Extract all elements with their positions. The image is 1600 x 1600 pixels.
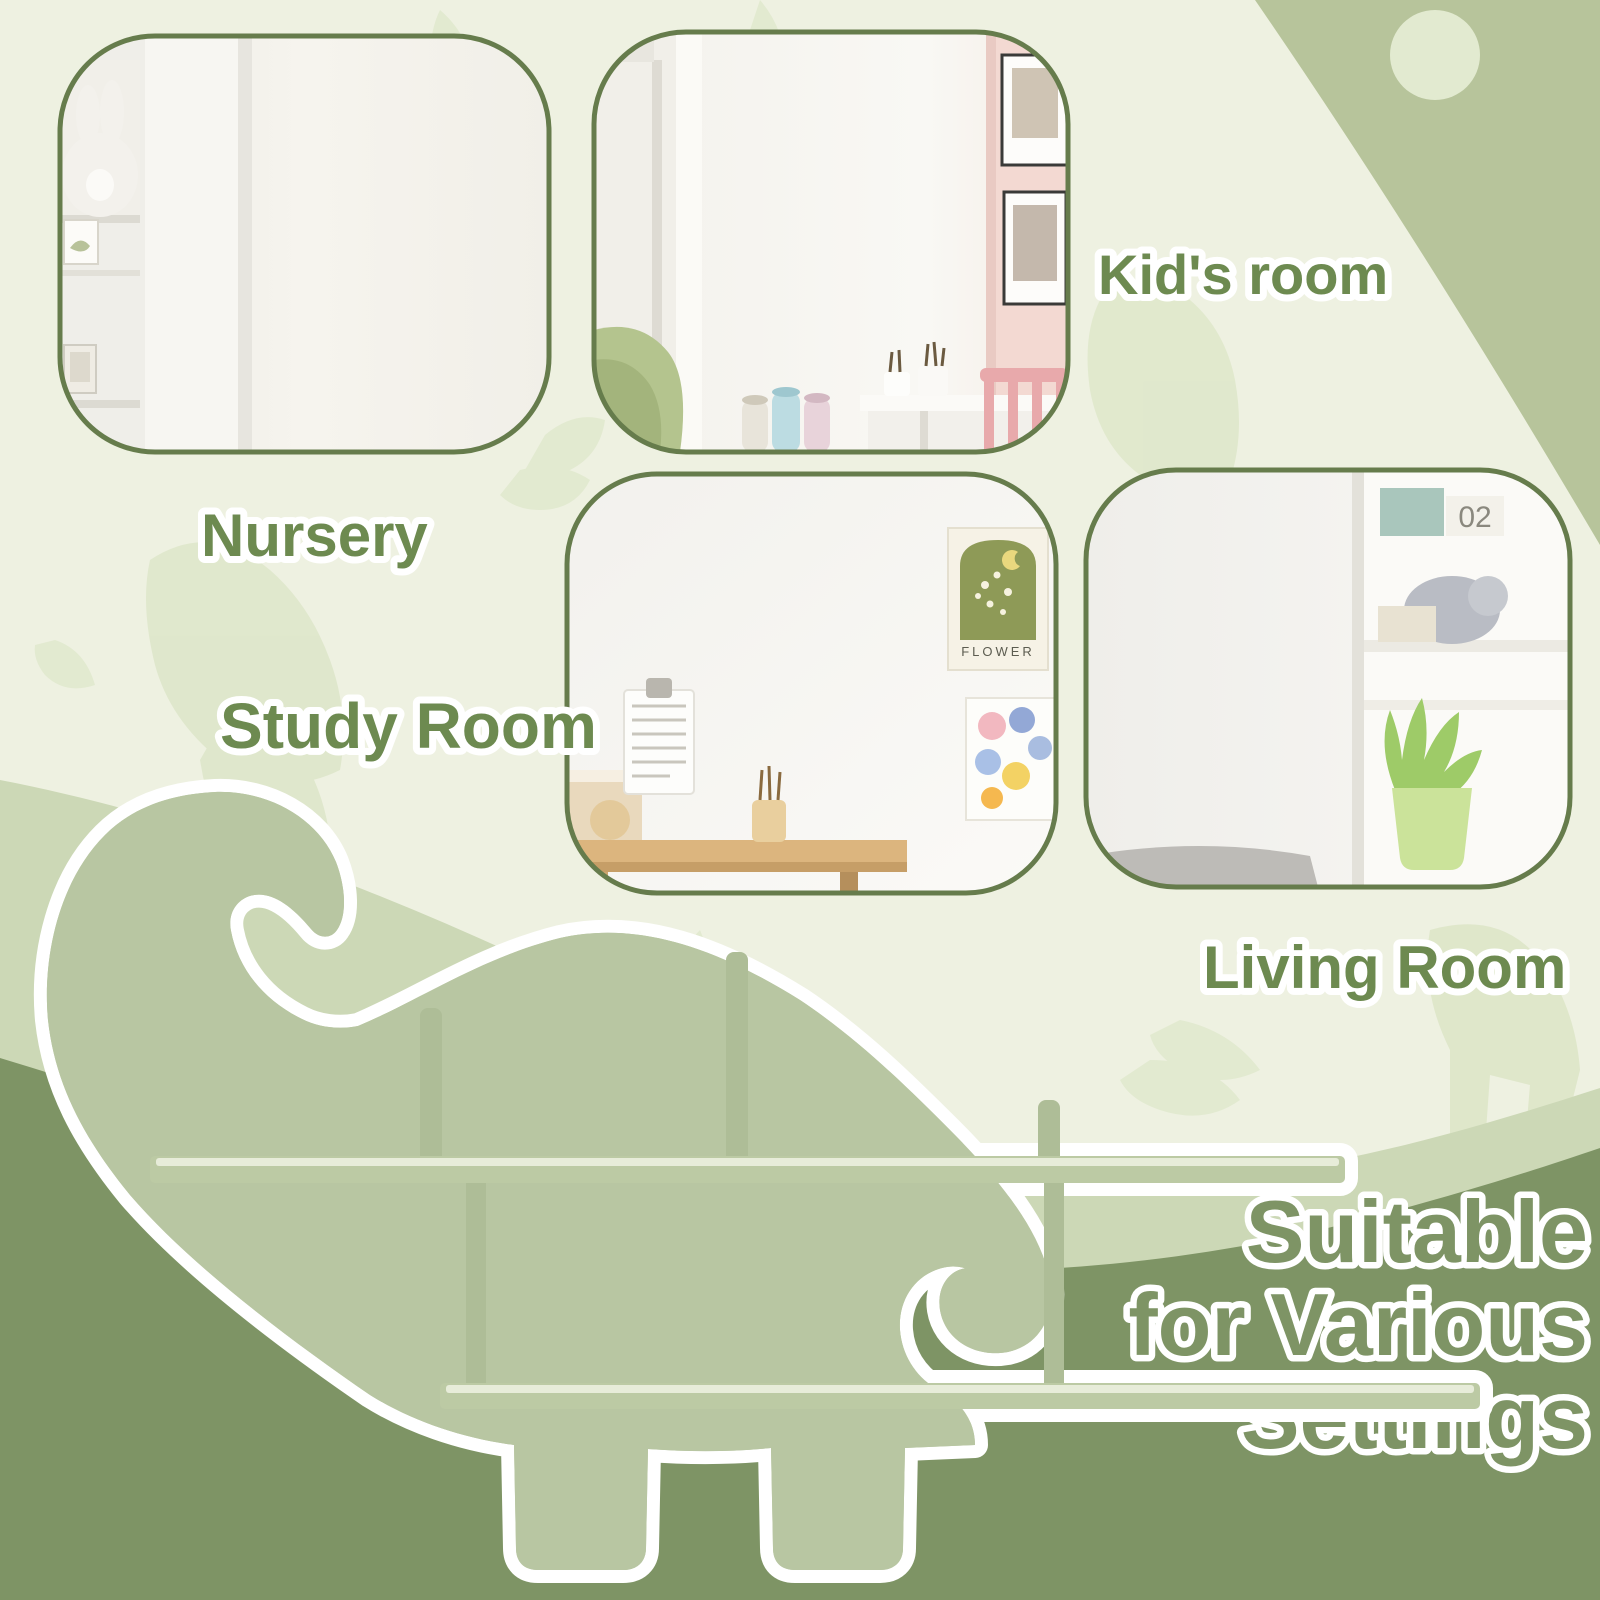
svg-text:FLOWER: FLOWER xyxy=(961,644,1035,659)
svg-text:Living Room: Living Room xyxy=(1203,934,1566,1001)
svg-text:for Various: for Various xyxy=(1128,1275,1588,1374)
svg-text:Suitable: Suitable xyxy=(1246,1182,1588,1281)
svg-text:Study Room: Study Room xyxy=(220,690,597,762)
svg-text:Nursery: Nursery xyxy=(201,502,428,569)
svg-text:02: 02 xyxy=(1458,501,1491,534)
svg-text:Kid's room: Kid's room xyxy=(1098,243,1388,306)
